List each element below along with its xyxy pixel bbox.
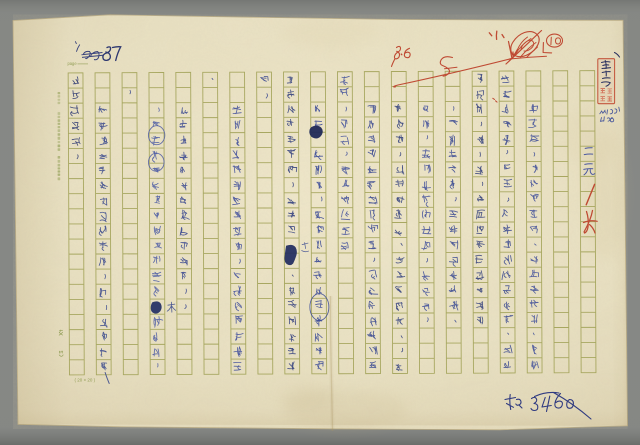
svg-text:( 20 × 20 ): ( 20 × 20 ) — [75, 378, 96, 383]
svg-text:page: page — [68, 61, 78, 66]
